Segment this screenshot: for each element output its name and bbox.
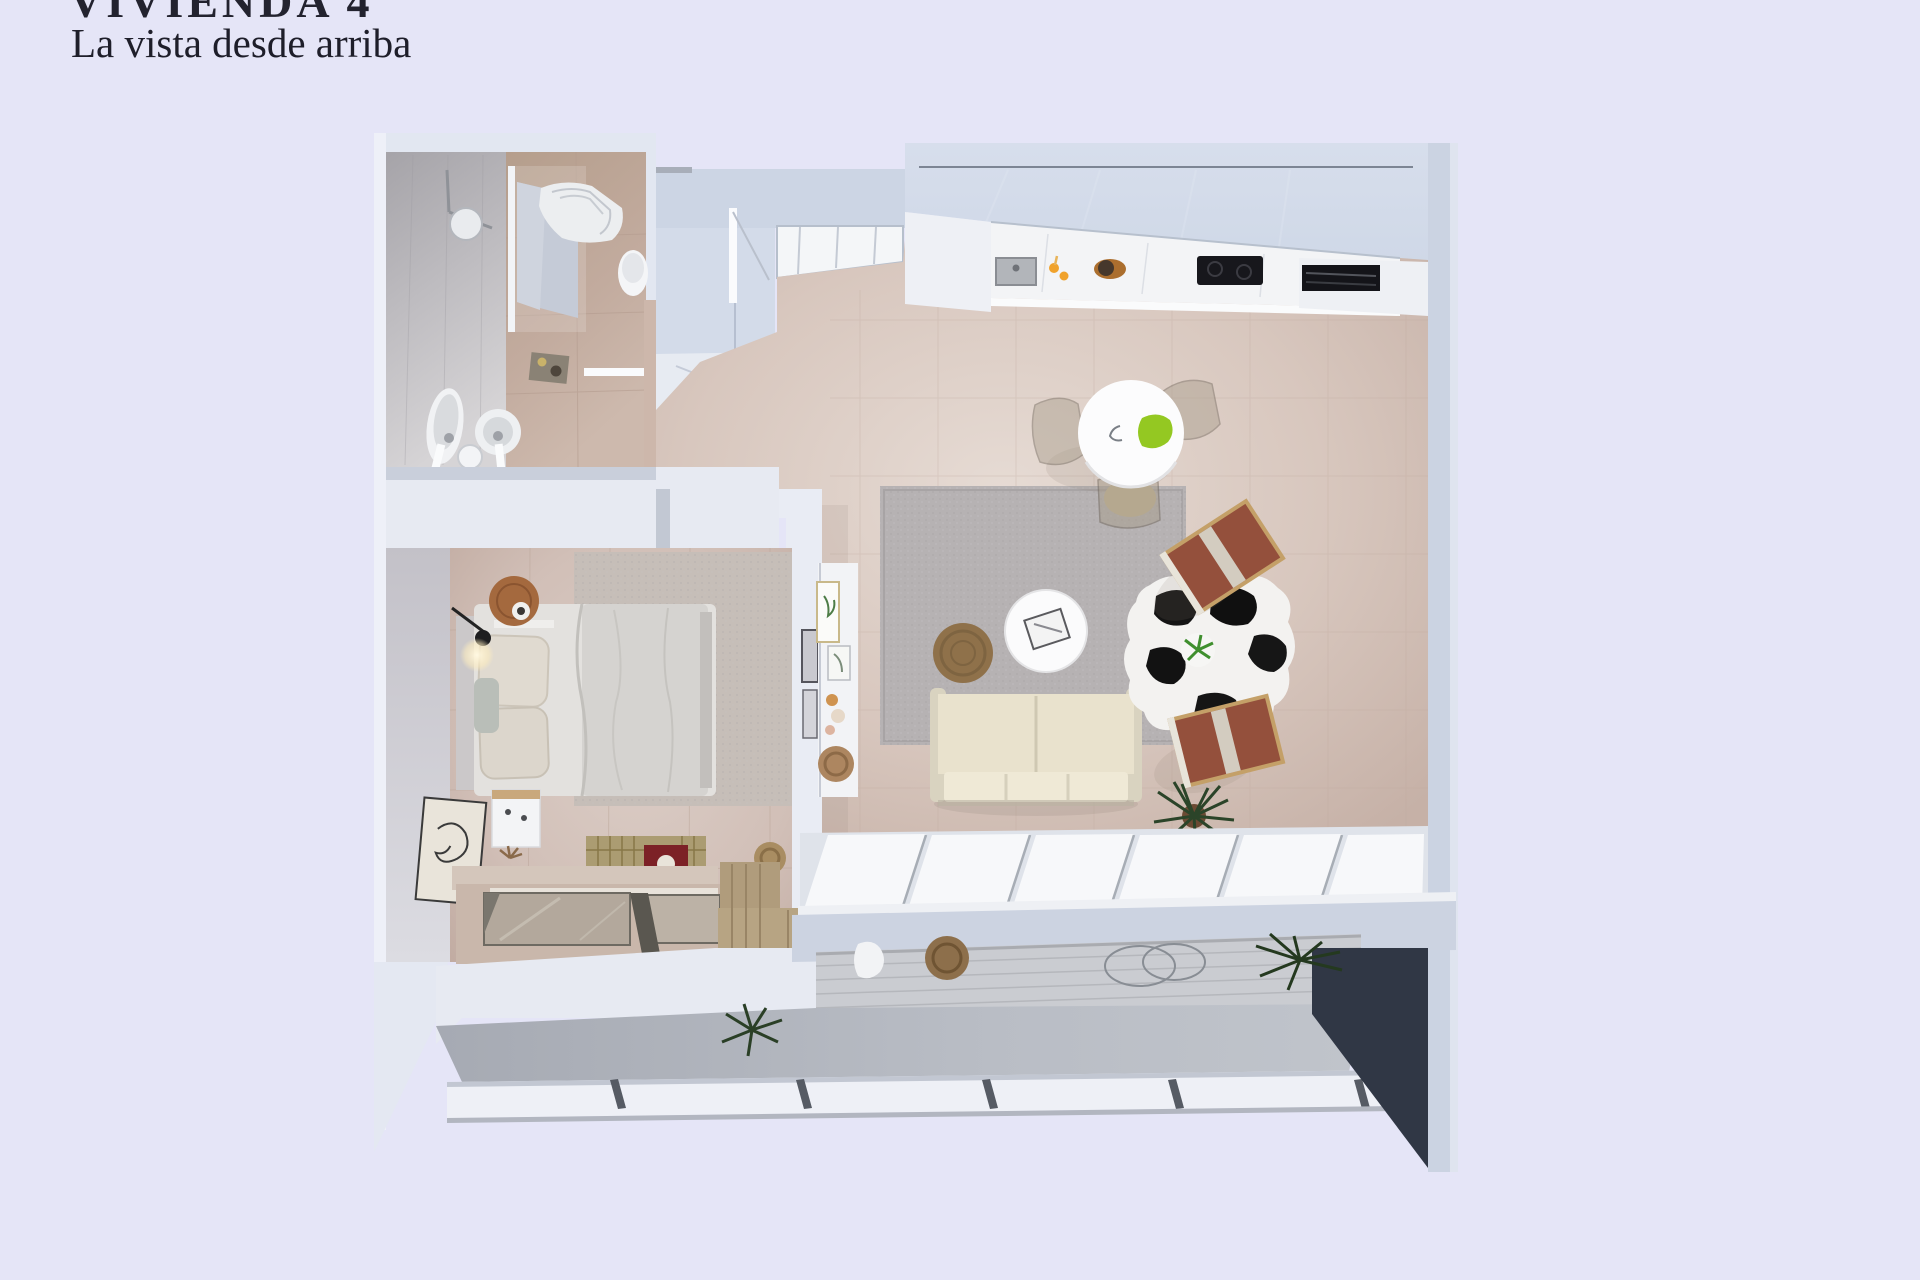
svg-text:La vista desde arriba: La vista desde arriba <box>71 20 411 66</box>
